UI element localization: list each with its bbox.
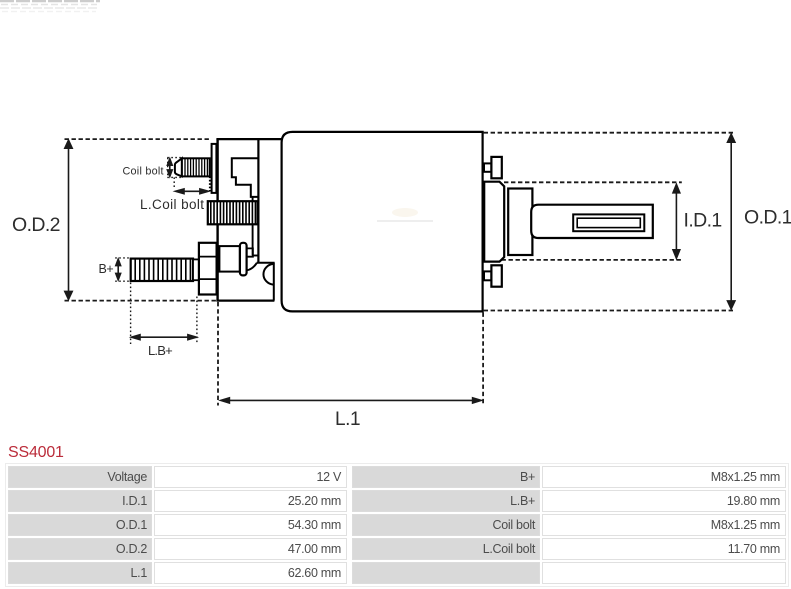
svg-text:L.B+: L.B+ [148, 343, 172, 358]
svg-text:Coil bolt: Coil bolt [123, 166, 164, 178]
svg-text:I.D.1: I.D.1 [684, 210, 722, 232]
svg-text:O.D.1: O.D.1 [744, 207, 791, 229]
svg-text:L.1: L.1 [335, 409, 360, 430]
svg-text:L.Coil bolt: L.Coil bolt [140, 197, 204, 212]
svg-text:O.D.2: O.D.2 [12, 214, 60, 236]
svg-text:B+: B+ [99, 262, 114, 276]
